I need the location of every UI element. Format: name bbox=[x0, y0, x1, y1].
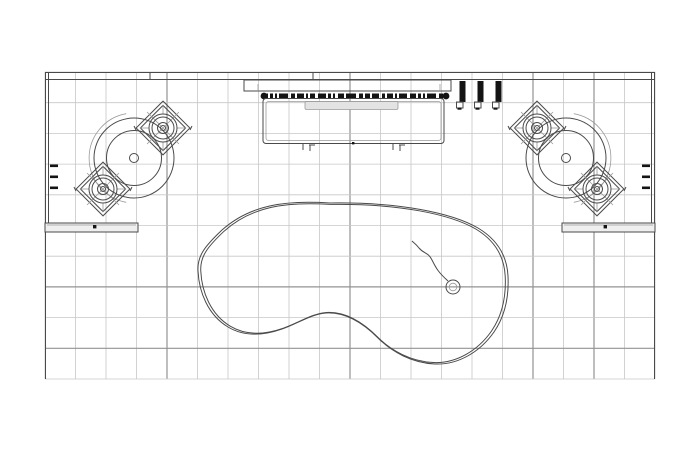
perimeter-wall bbox=[45, 73, 655, 80]
equipment-bar bbox=[475, 81, 484, 110]
plan-drawing-layer bbox=[0, 0, 700, 450]
equipment-bar bbox=[457, 81, 466, 110]
black-equipment-bars bbox=[457, 81, 502, 110]
left-station bbox=[45, 72, 192, 379]
console-insert-panel bbox=[305, 102, 398, 110]
console-top-shelf bbox=[244, 80, 451, 91]
right-station bbox=[508, 72, 655, 379]
pool-drain-and-cord bbox=[412, 241, 460, 294]
equipment-bar bbox=[493, 81, 502, 110]
dj-console bbox=[244, 80, 451, 151]
kidney-shaped-pool bbox=[198, 202, 508, 364]
cad-plan-canvas bbox=[0, 0, 700, 450]
